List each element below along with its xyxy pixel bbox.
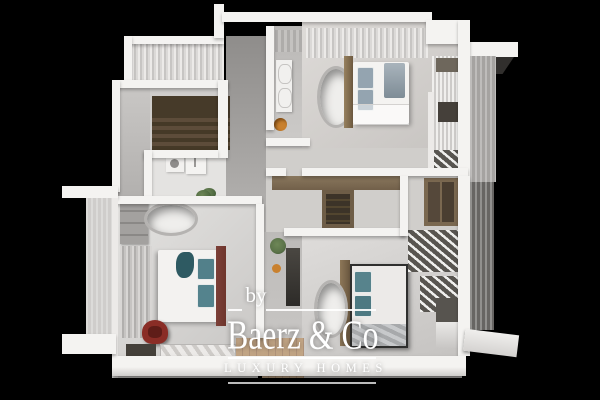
bedroom2-top-wall — [112, 196, 262, 204]
watermark-brand: Baerz & Co — [227, 316, 377, 357]
corridor-tall-cabinet — [286, 248, 300, 306]
right-wall-upper — [458, 20, 470, 176]
bath-left-wall — [144, 150, 152, 198]
bedroom3-top-wall — [284, 228, 406, 236]
topright-ledge — [464, 42, 518, 57]
terrace-top-wall — [124, 36, 224, 44]
master-headboard-panel — [344, 56, 353, 128]
terrace-curtain-floor — [126, 44, 224, 82]
master-bed-throw — [384, 63, 405, 98]
bedroom3-curtain-upper — [408, 230, 460, 272]
watermark-rule-bottom — [228, 382, 376, 384]
ensuite-orange-stool — [274, 118, 287, 131]
closet-island-shelves — [326, 194, 350, 224]
ensuite-shower-mat — [272, 30, 302, 52]
bedroom2-headboard — [216, 246, 226, 326]
ensuite-bottom-wall — [266, 138, 310, 146]
main-top-wall — [222, 12, 432, 22]
corridor-plant — [270, 238, 286, 254]
master-window-curtains — [306, 28, 428, 58]
watermark-rule-top-left — [228, 309, 242, 311]
bedroom2-bathtub — [144, 202, 198, 236]
terrace-left-wall — [124, 36, 132, 84]
vanity-sink — [278, 64, 292, 84]
red-armchair-seat — [148, 326, 162, 338]
corridor-orange-stool — [272, 264, 281, 273]
hall-divider-wall — [302, 168, 468, 176]
vanity-sink — [278, 88, 292, 108]
watermark-tagline: LUXURY HOMES — [224, 362, 380, 375]
floorplan-render: by Baerz & Co LUXURY HOMES — [0, 0, 600, 400]
washer-drum — [170, 159, 179, 168]
watermark-rule-top-right — [266, 309, 376, 311]
right-exterior-face-lower — [470, 182, 494, 330]
right-foundation-step — [463, 329, 519, 357]
closet-run-top — [272, 176, 404, 190]
bedroom2-pillow — [197, 284, 215, 308]
cabinet-door — [428, 182, 440, 222]
left-exterior-face — [86, 198, 112, 338]
stair-right-wall — [218, 80, 228, 158]
closet-end-wall — [400, 176, 408, 236]
master-pillow — [357, 67, 374, 89]
left-wing-wall — [112, 80, 120, 192]
bottomleft-step-ledge — [62, 334, 116, 354]
bath-divider-wall — [144, 150, 218, 158]
cabinet-door — [442, 182, 454, 222]
wardrobe-open-slot — [438, 102, 460, 122]
bedroom3-pillow — [354, 271, 372, 293]
left-step-ledge — [62, 186, 118, 198]
wing-divider-wall — [112, 80, 228, 88]
right-exterior-face-upper — [470, 56, 496, 182]
wardrobe-divider-wall — [428, 92, 434, 168]
bedroom2-pillow — [197, 258, 215, 280]
master-duvet-fold — [353, 104, 409, 125]
watermark-rule-middle — [228, 357, 376, 359]
watermark-by: by — [240, 285, 272, 306]
hall-divider-wall-left — [266, 168, 286, 176]
ensuite-left-wall — [266, 26, 274, 130]
sink-faucet — [194, 158, 196, 167]
bedroom2-throw — [176, 252, 194, 278]
